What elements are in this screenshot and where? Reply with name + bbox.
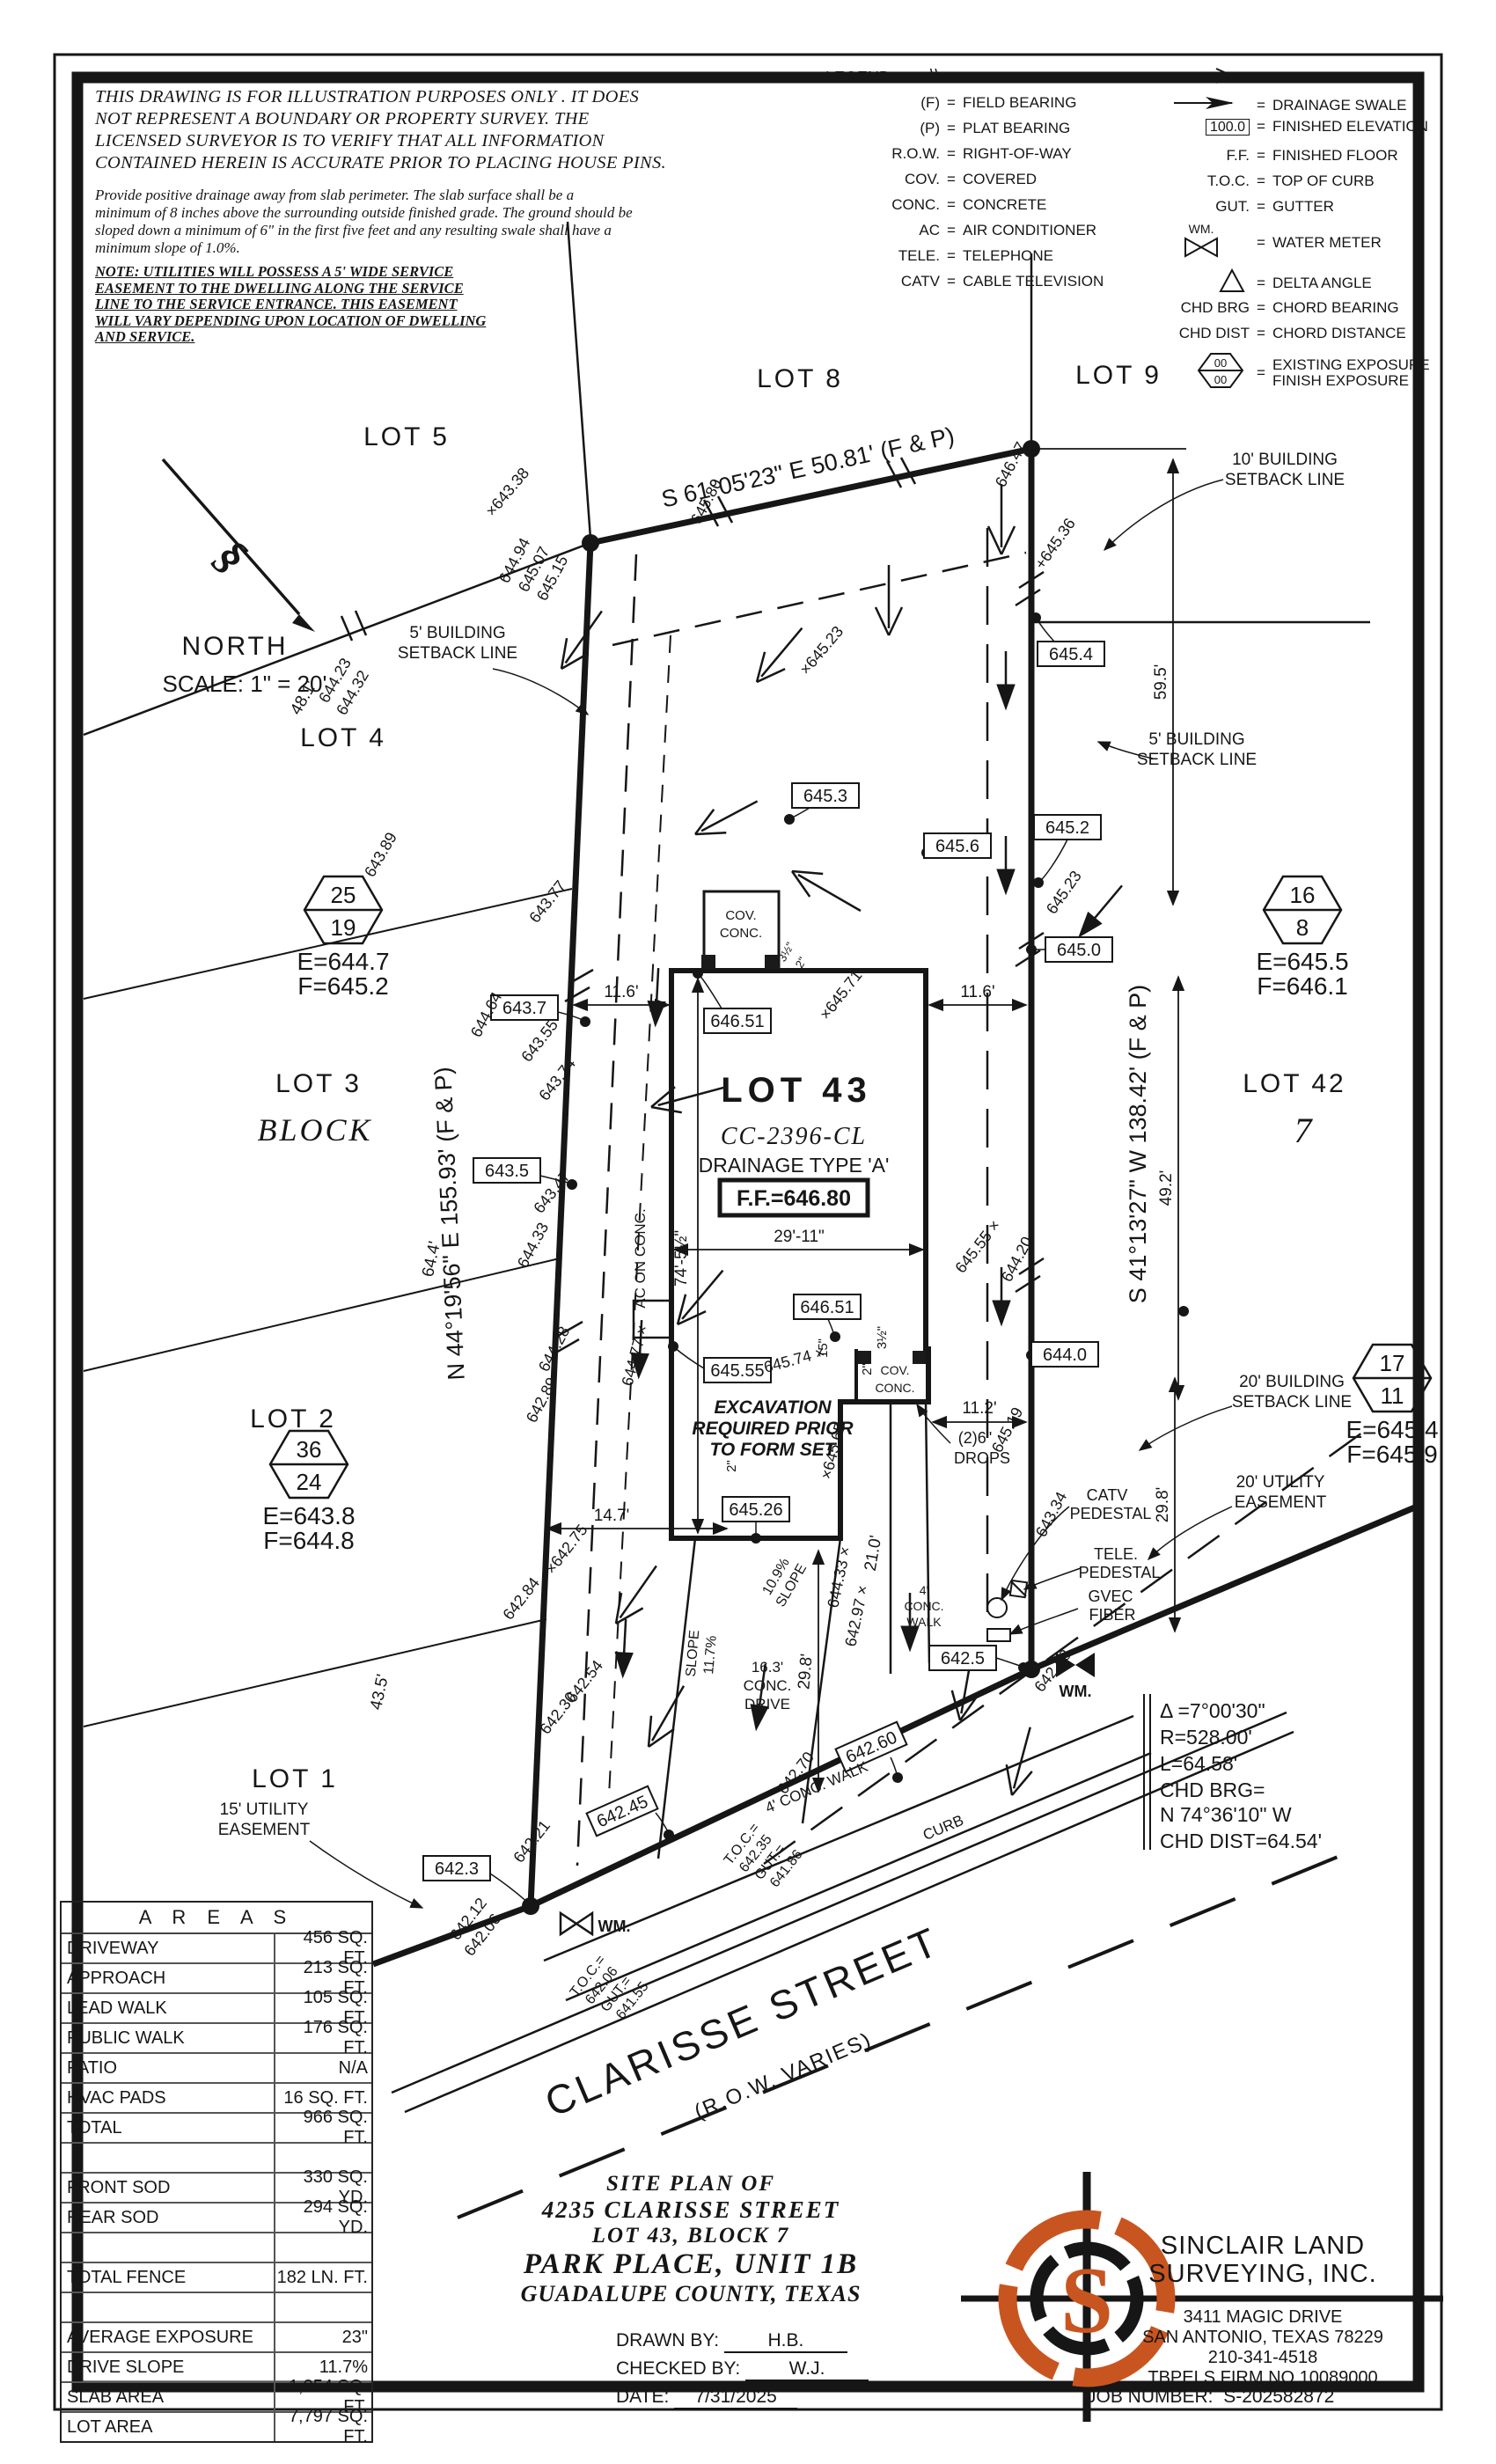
ac-pad-label: AC ON CONC.	[632, 1208, 649, 1308]
area-label	[62, 2233, 275, 2262]
legend-row: =SHEET FLOW	[1153, 67, 1369, 89]
spot-elevation: 644.33 ×	[824, 1545, 854, 1610]
legend-label: PLAT BEARING	[963, 120, 1070, 137]
company-name: SINCLAIR LAND SURVEYING, INC.	[1104, 2232, 1421, 2288]
boxed-elevation: 645.3	[803, 787, 847, 806]
legend-eq: =	[1250, 147, 1272, 165]
existing-elevation: E=645.5	[1256, 948, 1348, 975]
drive-slope-label: SLOPE 11.7%	[684, 1630, 721, 1679]
dimension-label: 14.7'	[594, 1507, 630, 1525]
boxed-elevation: 644.0	[1043, 1346, 1087, 1365]
boxed-elevation: 645.26	[729, 1500, 782, 1520]
legend-row: GUT.=GUTTER	[1153, 198, 1334, 216]
legend-label: SHEET FLOW	[1272, 70, 1369, 87]
legend-label: COVERED	[963, 171, 1037, 188]
utility-callouts: CATV PEDESTAL TELE. PEDESTAL GVEC FIBER …	[598, 1429, 1161, 1935]
legend-row: \\=WOOD FENCE	[880, 67, 1066, 87]
drops-label: (2)6"	[958, 1429, 992, 1447]
dimension-label: 3½"	[875, 1326, 890, 1349]
company-address: 3411 MAGIC DRIVE SAN ANTONIO, TEXAS 7822…	[1096, 2307, 1430, 2388]
company-address-line: SAN ANTONIO, TEXAS 78229	[1096, 2328, 1430, 2348]
setback-label: 20' BUILDING	[1239, 1373, 1345, 1391]
setback-label: 5' BUILDING	[1148, 730, 1244, 749]
legend-eq: =	[1250, 70, 1272, 87]
area-label: HVAC PADS	[62, 2084, 275, 2112]
boxed-elevation: 646.51	[800, 1298, 854, 1317]
block-label: BLOCK	[257, 1112, 372, 1148]
legend-label: GUTTER	[1272, 198, 1334, 216]
spot-elevation: 646.47	[992, 439, 1030, 490]
note-line: WILL VARY DEPENDING UPON LOCATION OF DWE…	[95, 313, 641, 330]
curb-label: CURB	[920, 1812, 966, 1844]
legend-row: 0000=EXISTING EXPOSUREFINISH EXPOSURE	[1153, 350, 1430, 395]
catv-pedestal-label: CATV	[1087, 1486, 1128, 1504]
legend-label: AIR CONDITIONER	[963, 222, 1096, 239]
excavation-note: EXCAVATION	[714, 1397, 832, 1418]
title-line: GUADALUPE COUNTY, TEXAS	[480, 2281, 902, 2307]
company-firm-number: TBPELS FIRM NO.10089000	[1096, 2368, 1430, 2388]
area-label: DRIVE SLOPE	[62, 2353, 275, 2381]
note-line: AND SERVICE.	[95, 329, 641, 346]
legend-label: CONCRETE	[963, 196, 1046, 214]
legend-eq: =	[1250, 299, 1272, 317]
leader-dots	[567, 612, 1189, 1840]
gvec-fiber-label: GVEC	[1088, 1588, 1133, 1605]
boxed-elevation: 645.0	[1057, 941, 1101, 960]
legend-eq: =	[940, 94, 963, 112]
boxed-elevation: 642.3	[435, 1859, 479, 1879]
dimension-label: 43.5'	[367, 1673, 392, 1712]
gvec-fiber-icon	[987, 1629, 1010, 1641]
spot-elevation: 643.74	[535, 1055, 579, 1104]
water-meter-label: WM.	[598, 1918, 631, 1935]
curb-gutter-elevations: T.O.C.= 642.35 GUT.= 641.86	[722, 1816, 806, 1899]
setback-label: SETBACK LINE	[1232, 1393, 1352, 1412]
finish-exposure-value: 11	[1381, 1382, 1404, 1409]
finished-elevation-symbol: 100.0	[1153, 118, 1250, 136]
lot-label: LOT 2	[250, 1404, 336, 1434]
water-meter-icon: WM.	[1153, 222, 1250, 263]
legend-row: (P)=PLAT BEARING	[880, 120, 1070, 137]
sheet-flow-icon	[1153, 67, 1250, 89]
legend-row: WM.=WATER METER	[1153, 222, 1382, 263]
curve-length: L=64.58'	[1160, 1752, 1237, 1775]
setback-label: SETBACK LINE	[1137, 751, 1257, 769]
dimension-label: 59.5'	[1152, 664, 1170, 700]
bearing-right: S 41°13'27" W 138.42' (F & P)	[1125, 985, 1151, 1303]
exposure-hexagon: 16 8 E=645.5 F=646.1	[1256, 876, 1348, 1000]
dimension-label: 49.2'	[1157, 1170, 1176, 1206]
grading-line: sloped down a minimum of 6" in the first…	[95, 222, 808, 239]
walk-label: 4'	[920, 1583, 928, 1597]
legend-eq: =	[940, 120, 963, 137]
title-line: SITE PLAN OF	[480, 2172, 902, 2196]
boxed-elevation: 643.7	[502, 999, 546, 1018]
area-label: APPROACH	[62, 1964, 275, 1992]
curve-chord-bearing-value: N 74°36'10" W	[1160, 1803, 1292, 1826]
area-value: 11.7%	[275, 2358, 371, 2378]
legend-eq: =	[1250, 97, 1272, 114]
legend-row: T.O.C.=TOP OF CURB	[1153, 172, 1375, 190]
legend-eq: =	[1250, 172, 1272, 190]
curb-gutter-elevations: T.O.C.= 642.06 GUT.= 641.55	[568, 1948, 652, 2031]
wood-fence-symbol: \\	[880, 67, 940, 87]
ac-abbrev: AC	[880, 222, 940, 239]
setback-label: 10' BUILDING	[1232, 451, 1338, 469]
chd-dist-abbrev: CHD DIST	[1153, 325, 1250, 342]
disclaimer-line: LICENSED SURVEYOR IS TO VERIFY THAT ALL …	[95, 130, 799, 152]
north-label: NORTH	[181, 632, 288, 661]
existing-exposure-value: 36	[297, 1436, 322, 1463]
area-label: PATIO	[62, 2054, 275, 2082]
legend-eq: =	[940, 247, 963, 265]
table-row	[62, 2233, 371, 2263]
legend-label: FINISHED FLOOR	[1272, 147, 1398, 165]
spot-elevation: 643.77	[525, 877, 569, 927]
existing-elevation: E=643.8	[262, 1502, 355, 1529]
exposure-hexagon: 17 11 E=645.4 F=645.9	[1346, 1345, 1438, 1468]
exposure-hexagon: 25 19 E=644.7 F=645.2	[297, 876, 389, 1000]
date-label: DATE:	[616, 2387, 669, 2407]
table-row: AVERAGE EXPOSURE23"	[62, 2323, 371, 2353]
spot-elevation: +645.36	[1031, 515, 1079, 572]
excavation-note: REQUIRED PRIOR	[692, 1419, 854, 1439]
company-name-line: SURVEYING, INC.	[1104, 2260, 1421, 2288]
legend-label: WATER METER	[1272, 234, 1382, 252]
note-line: NOTE: UTILITIES WILL POSSESS A 5' WIDE S…	[95, 264, 641, 281]
checked-by-row: CHECKED BY: W.J.	[616, 2358, 869, 2381]
boxed-elevation: 645.55	[710, 1361, 764, 1381]
legend-eq: =	[940, 222, 963, 239]
area-label: LOT AREA	[62, 2413, 275, 2441]
svg-text:00: 00	[1214, 356, 1227, 370]
drawn-by-row: DRAWN BY: H.B.	[616, 2330, 847, 2353]
legend-label: CHORD BEARING	[1272, 299, 1399, 317]
block-number-label: 7	[1294, 1111, 1315, 1150]
area-value: 182 LN. FT.	[275, 2268, 371, 2288]
drive-label: DRIVE	[744, 1696, 790, 1712]
lot-label: LOT 8	[757, 364, 843, 393]
legend-row: CONC.=CONCRETE	[880, 196, 1046, 214]
table-row: TOTAL FENCE182 LN. FT.	[62, 2263, 371, 2293]
north-arrow: § NORTH SCALE: 1" = 20'	[163, 459, 327, 697]
dimension-label: 2"	[724, 1460, 739, 1472]
site-plan-sheet: 25 19 E=644.7 F=645.2 16 8 E=645.5 F=646…	[0, 0, 1496, 2464]
service-easement-note: NOTE: UTILITIES WILL POSSESS A 5' WIDE S…	[95, 264, 641, 346]
legend-row: COV.=COVERED	[880, 171, 1037, 188]
catv-pedestal-icon	[987, 1598, 1007, 1617]
catv-pedestal-label: PEDESTAL	[1070, 1505, 1152, 1522]
finish-exposure-value: 24	[297, 1469, 322, 1495]
disclaimer-line: NOT REPRESENT A BOUNDARY OR PROPERTY SUR…	[95, 108, 799, 130]
gutter-abbrev: GUT.	[1153, 198, 1250, 216]
curve-data: Δ =7°00'30" R=528.00' L=64.58' CHD BRG= …	[1160, 1699, 1322, 1852]
existing-exposure-value: 17	[1380, 1350, 1405, 1376]
dimension-label: 11.6'	[960, 983, 994, 1001]
legend-row: R.O.W.=RIGHT-OF-WAY	[880, 145, 1072, 163]
table-row: REAR SOD294 SQ. YD.	[62, 2204, 371, 2233]
areas-table: A R E A S DRIVEWAY456 SQ. FT. APPROACH21…	[60, 1901, 373, 2443]
tele-pedestal-label: PEDESTAL	[1079, 1564, 1161, 1581]
dimension-label: 11.2'	[962, 1399, 996, 1418]
legend-eq: =	[940, 171, 963, 188]
lot-label: LOT 4	[300, 723, 386, 752]
area-label: SLAB AREA	[62, 2383, 275, 2411]
field-bearing-symbol: (F)	[880, 94, 940, 112]
lot-label: LOT 1	[252, 1764, 338, 1793]
legend-row: TELE.=TELEPHONE	[880, 247, 1053, 265]
finished-floor-value: F.F.=646.80	[737, 1186, 851, 1211]
title-line: LOT 43, BLOCK 7	[480, 2224, 902, 2248]
spot-elevation: 642.97 ×	[841, 1584, 871, 1648]
curve-delta: Δ =7°00'30"	[1160, 1699, 1265, 1722]
finish-exposure-value: 19	[331, 914, 356, 941]
setback-label: SETBACK LINE	[1225, 471, 1345, 489]
spot-elevation: ×645.71	[816, 966, 865, 1023]
drive-label: CONC.	[744, 1677, 792, 1694]
date-row: DATE: 7/31/2025	[616, 2387, 797, 2409]
legend-label: FINISH EXPOSURE	[1272, 373, 1430, 389]
chd-brg-abbrev: CHD BRG	[1153, 299, 1250, 317]
water-meter-left	[561, 1913, 592, 1934]
curve-radius: R=528.00'	[1160, 1726, 1252, 1749]
spot-elevation: 644.33	[514, 1220, 553, 1271]
table-row	[62, 2293, 371, 2323]
dimension-label: 2"	[793, 955, 810, 971]
area-label: REAR SOD	[62, 2204, 275, 2232]
legend-row: (F)=FIELD BEARING	[880, 94, 1076, 112]
legend-label: WOOD FENCE	[963, 69, 1066, 86]
legend-label: CABLE TELEVISION	[963, 273, 1104, 290]
dimension-label: 29.8'	[1154, 1487, 1172, 1523]
grading-line: Provide positive drainage away from slab…	[95, 187, 808, 204]
area-value: 294 SQ. YD.	[275, 2197, 371, 2238]
finish-elevation: F=645.9	[1346, 1441, 1438, 1468]
tele-pedestal-label: TELE.	[1094, 1545, 1138, 1563]
area-value: 176 SQ. FT.	[275, 2018, 371, 2058]
dimension-label: 15"	[816, 1338, 831, 1358]
legend-row: CHD DIST=CHORD DISTANCE	[1153, 325, 1406, 342]
legend-eq: =	[1250, 325, 1272, 342]
drainage-type: DRAINAGE TYPE 'A'	[699, 1154, 890, 1177]
legend-row: F.F.=FINISHED FLOOR	[1153, 147, 1398, 165]
checked-by-label: CHECKED BY:	[616, 2358, 740, 2379]
area-label: FRONT SOD	[62, 2174, 275, 2202]
table-row: LOT AREA7,797 SQ. FT.	[62, 2413, 371, 2441]
job-number: JOB NUMBER: S-202582872	[1087, 2387, 1439, 2408]
legend-label: FIELD BEARING	[963, 94, 1076, 112]
plat-bearing-symbol: (P)	[880, 120, 940, 137]
area-value: 16 SQ. FT.	[275, 2088, 371, 2108]
dimension-label: 74'-5½"	[672, 1230, 691, 1287]
spot-elevation: ×645.23	[796, 622, 847, 678]
company-phone: 210-341-4518	[1096, 2348, 1430, 2368]
plan-id: CC-2396-CL	[721, 1123, 867, 1150]
legend-label: DRAINAGE SWALE	[1272, 97, 1406, 114]
svg-text:00: 00	[1214, 373, 1227, 386]
spot-elevation: ×643.38	[482, 464, 532, 519]
legend-eq: =	[940, 69, 963, 86]
catv-abbrev: CATV	[880, 273, 940, 290]
tele-abbrev: TELE.	[880, 247, 940, 265]
drive-label: 16.3'	[752, 1659, 783, 1676]
drainage-swale-icon	[1153, 94, 1250, 116]
easement-label: 20' UTILITY	[1236, 1473, 1325, 1492]
setback-label: 5' BUILDING	[409, 624, 505, 642]
walk-label: CONC.	[904, 1599, 943, 1613]
dimension-label: 11.6'	[604, 983, 638, 1001]
disclaimer-note: THIS DRAWING IS FOR ILLUSTRATION PURPOSE…	[95, 86, 799, 174]
legend-label: CHORD DISTANCE	[1272, 325, 1406, 342]
grading-note: Provide positive drainage away from slab…	[95, 187, 808, 257]
building-lot-number: LOT 43	[721, 1071, 872, 1110]
area-value: 23"	[275, 2328, 371, 2348]
exposure-hexagon: 36 24 E=643.8 F=644.8	[262, 1431, 355, 1554]
existing-elevation: E=644.7	[297, 948, 389, 975]
lot-label: LOT 3	[275, 1069, 362, 1098]
note-line: LINE TO THE SERVICE ENTRANCE. THIS EASEM…	[95, 297, 641, 313]
existing-exposure-value: 16	[1290, 882, 1316, 908]
dimension-label: 29'-11"	[774, 1228, 825, 1246]
finish-exposure-value: 8	[1296, 914, 1309, 941]
covered-concrete-label: COV.	[881, 1363, 910, 1377]
legend-eq: =	[1250, 364, 1272, 382]
delta-angle-icon	[1153, 268, 1250, 298]
finish-elevation: F=646.1	[1257, 972, 1348, 1000]
title-line: PARK PLACE, UNIT 1B	[480, 2248, 902, 2281]
legend-label: FINISHED ELEVATION	[1272, 118, 1428, 136]
curve-chord-bearing: CHD BRG=	[1160, 1778, 1265, 1801]
area-label: TOTAL FENCE	[62, 2263, 275, 2292]
legend-label: DELTA ANGLE	[1272, 275, 1372, 292]
legend-row: =DRAINAGE SWALE	[1153, 94, 1406, 116]
table-row: PATION/A	[62, 2054, 371, 2084]
title-block: SITE PLAN OF 4235 CLARISSE STREET LOT 43…	[480, 2172, 902, 2307]
covered-concrete-label: CONC.	[875, 1381, 914, 1395]
scale-label: SCALE: 1" = 20'	[163, 671, 327, 697]
water-meter-label: WM.	[1060, 1683, 1092, 1700]
area-label: AVERAGE EXPOSURE	[62, 2323, 275, 2351]
bearing-left: N 44°19'56" E 155.93' (F & P)	[429, 1067, 470, 1381]
setback-label: SETBACK LINE	[398, 644, 517, 663]
disclaimer-line: THIS DRAWING IS FOR ILLUSTRATION PURPOSE…	[95, 86, 799, 108]
easement-label: EASEMENT	[1235, 1493, 1327, 1512]
legend-label: RIGHT-OF-WAY	[963, 145, 1072, 163]
existing-exposure-value: 25	[331, 882, 356, 908]
boxed-elevation: 646.51	[710, 1012, 764, 1031]
area-label	[62, 2144, 275, 2172]
grading-line: minimum of 8 inches above the surroundin…	[95, 204, 808, 222]
row-abbrev: R.O.W.	[880, 145, 940, 163]
lot-label: LOT 5	[363, 422, 450, 451]
spot-elevations: ×643.38 644.94 645.07 645.15 645.80 646.…	[315, 439, 1085, 1960]
boxed-elevation: 645.6	[935, 837, 979, 856]
finish-elevation: F=644.8	[263, 1527, 355, 1554]
legend-label: TOP OF CURB	[1272, 172, 1375, 190]
drawn-by-value: H.B.	[724, 2330, 847, 2353]
easement-label: EASEMENT	[218, 1821, 311, 1839]
date-value: 7/31/2025	[674, 2387, 797, 2409]
covered-abbrev: COV.	[880, 171, 940, 188]
legend-eq: =	[1250, 118, 1272, 136]
area-value: 7,797 SQ. FT.	[275, 2407, 371, 2447]
legend-eq: =	[940, 273, 963, 290]
covered-concrete-label: COV.	[725, 908, 756, 923]
area-label: LEAD WALK	[62, 1994, 275, 2022]
legend-row: 100.0=FINISHED ELEVATION	[1153, 118, 1428, 136]
table-row: PUBLIC WALK176 SQ. FT.	[62, 2024, 371, 2054]
ff-abbrev: F.F.	[1153, 147, 1250, 165]
slope-label: SLOPE	[684, 1630, 703, 1678]
spot-elevation: 643.34	[1032, 1489, 1071, 1540]
spot-elevation: 645.55 ×	[951, 1217, 1003, 1277]
boxed-elevation: 645.2	[1045, 818, 1089, 838]
concrete-abbrev: CONC.	[880, 196, 940, 214]
legend-label: EXISTING EXPOSURE	[1272, 357, 1430, 373]
legend-row: =DELTA ANGLE	[1153, 268, 1372, 298]
toc-abbrev: T.O.C.	[1153, 172, 1250, 190]
area-value: N/A	[275, 2058, 371, 2079]
area-label: PUBLIC WALK	[62, 2024, 275, 2052]
spot-elevation: 644.28	[535, 1324, 574, 1375]
covered-concrete-label: CONC.	[720, 926, 762, 941]
street-labels: CLARISSE STREET (R.O.W. VARIES) CURB 4' …	[539, 1552, 966, 2125]
spot-elevation: 643.55	[517, 1016, 561, 1066]
boxed-elevation: 643.5	[485, 1162, 529, 1181]
boxed-elevation: 645.4	[1049, 645, 1093, 664]
exposure-hexagon-icon: 0000	[1153, 350, 1250, 395]
legend-eq: =	[1250, 234, 1272, 252]
title-line: 4235 CLARISSE STREET	[480, 2196, 902, 2224]
legend-row: CHD BRG=CHORD BEARING	[1153, 299, 1399, 317]
legend-eq: =	[940, 196, 963, 214]
company-address-line: 3411 MAGIC DRIVE	[1096, 2307, 1430, 2328]
grading-line: minimum slope of 1.0%.	[95, 239, 808, 257]
slope-label: 11.7%	[701, 1635, 720, 1676]
table-row: TOTAL966 SQ. FT.	[62, 2114, 371, 2144]
area-label	[62, 2293, 275, 2321]
company-name-line: SINCLAIR LAND	[1104, 2232, 1421, 2260]
spot-elevation: 643.89	[361, 829, 400, 880]
legend-eq: =	[940, 145, 963, 163]
job-number-label: JOB NUMBER:	[1087, 2387, 1214, 2407]
lot-label: LOT 9	[1075, 361, 1162, 390]
dimension-label: 29.8'	[795, 1653, 816, 1690]
finish-elevation: F=645.2	[297, 972, 389, 1000]
walk-slope-label: 10.9% SLOPE	[758, 1552, 810, 1610]
excavation-note: TO FORM SET	[709, 1440, 837, 1460]
job-number-value: S-202582872	[1223, 2387, 1334, 2407]
legend-eq: =	[1250, 275, 1272, 292]
checked-by-value: W.J.	[745, 2358, 869, 2381]
dimension-label: 21.0'	[862, 1534, 886, 1573]
legend-eq: =	[1250, 198, 1272, 216]
spot-elevation: 645.23	[1043, 868, 1085, 918]
spot-elevation: 642.84	[499, 1574, 543, 1624]
disclaimer-line: CONTAINED HEREIN IS ACCURATE PRIOR TO PL…	[95, 152, 799, 174]
dimension-label: 2"	[860, 1363, 875, 1375]
drops-label: DROPS	[954, 1449, 1010, 1467]
boxed-elevation: 642.5	[941, 1649, 985, 1668]
legend-row: CATV=CABLE TELEVISION	[880, 273, 1104, 290]
area-value: 966 SQ. FT.	[275, 2108, 371, 2148]
easement-label: 15' UTILITY	[220, 1800, 309, 1819]
gvec-fiber-label: FIBER	[1089, 1606, 1135, 1624]
building-labels: LOT 43 CC-2396-CL DRAINAGE TYPE 'A' F.F.…	[632, 908, 915, 1460]
curve-chord-distance: CHD DIST=64.54'	[1160, 1830, 1322, 1852]
area-label: TOTAL	[62, 2114, 275, 2142]
walk-label: WALK	[906, 1615, 942, 1629]
